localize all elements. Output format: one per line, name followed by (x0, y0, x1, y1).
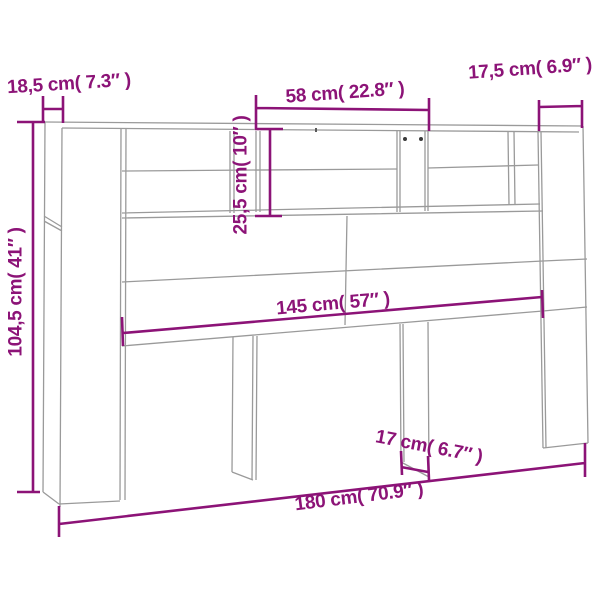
support-leg-lines (232, 322, 429, 480)
dimension-total-height: 104,5 cm( 41″ ) (6, 122, 46, 492)
shelf-divider-lines (230, 131, 515, 213)
dimension-left-depth: 18,5 cm( 7.3″ ) (6, 70, 131, 123)
dimension-inner-width: 145 cm( 57″ ) (122, 289, 543, 346)
dimension-line-left-depth (43, 96, 63, 123)
dimension-total-width: 180 cm( 70.9″ ) (59, 443, 585, 537)
dimension-label-top-shelf-width: 58 cm( 22.8″ ) (285, 78, 405, 107)
headboard-dimension-drawing: 18,5 cm( 7.3″ ) 58 cm( 22.8″ ) 17,5 cm( … (0, 0, 600, 600)
left-side-panel-lines (43, 122, 126, 507)
dimension-label-left-depth: 18,5 cm( 7.3″ ) (6, 70, 131, 99)
dimension-line-shelf-height (255, 129, 283, 216)
dimension-right-depth: 17,5 cm( 6.9″ ) (467, 54, 592, 131)
dimension-label-right-depth: 17,5 cm( 6.9″ ) (467, 54, 592, 84)
dimension-top-shelf-width: 58 cm( 22.8″ ) (256, 78, 429, 131)
door-knob-left-icon (403, 137, 407, 141)
dimension-label-shelf-height: 25,5 cm( 10″ ) (231, 116, 252, 235)
shelf-lines (122, 165, 543, 218)
door-knob-right-icon (419, 137, 423, 141)
dimension-label-total-width: 180 cm( 70.9″ ) (294, 479, 425, 516)
dimension-diagram: 18,5 cm( 7.3″ ) 58 cm( 22.8″ ) 17,5 cm( … (0, 0, 600, 600)
right-side-panel-lines (538, 126, 588, 448)
dimension-label-total-height: 104,5 cm( 41″ ) (6, 227, 27, 356)
dimension-shelf-height: 25,5 cm( 10″ ) (231, 116, 284, 235)
